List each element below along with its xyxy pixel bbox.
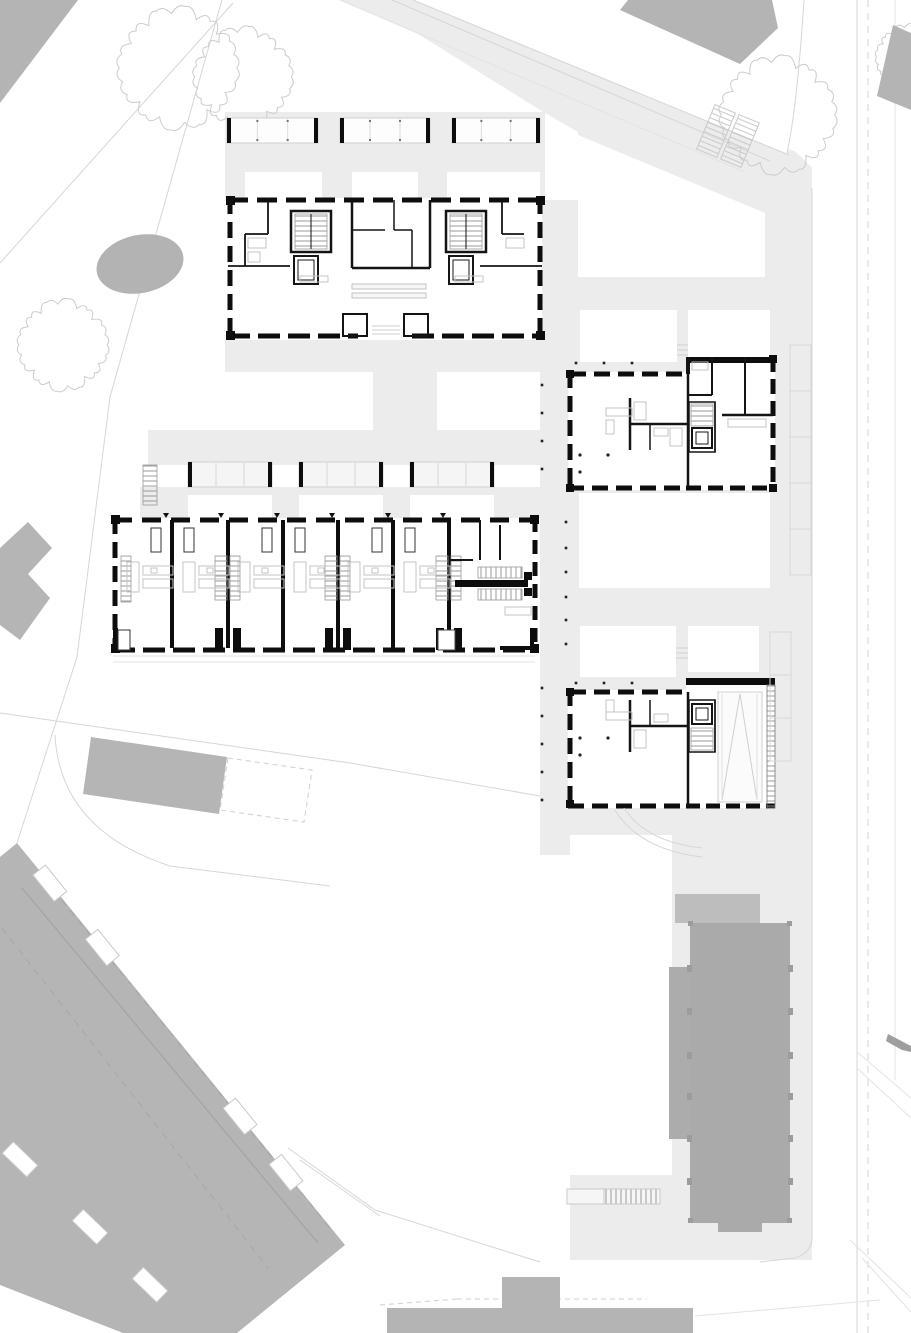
- garden-se-2: [688, 626, 759, 672]
- column-dot: [603, 682, 606, 685]
- stair-lift-core: [689, 402, 715, 452]
- porch-west: [113, 628, 118, 652]
- unit-stair-1: [215, 556, 227, 600]
- column-dot: [541, 384, 544, 387]
- pergola-3: [410, 462, 494, 487]
- column-dot: [565, 521, 568, 524]
- tower-pilaster: [788, 1052, 793, 1059]
- hall-north-wall: [686, 678, 775, 685]
- pergola-2: [299, 462, 383, 487]
- wardrobe-3b: [405, 528, 415, 552]
- mailbox-counter-2: [352, 293, 426, 298]
- tower-pilaster: [687, 1052, 692, 1059]
- porch-2b: [343, 628, 351, 650]
- west-exterior-stair: [143, 465, 157, 505]
- patio-north-2: [352, 172, 418, 200]
- tower-pilaster: [687, 965, 692, 972]
- tower-west-lawn: [570, 835, 672, 1175]
- patio-north-1: [245, 172, 322, 200]
- garden-ne-1: [580, 310, 677, 362]
- tower-pilaster: [687, 1135, 692, 1142]
- tower-pilaster: [687, 1008, 692, 1015]
- corridor-stair-lower: [478, 589, 522, 600]
- wardrobe-1b: [184, 528, 194, 552]
- tower-west-annex: [669, 967, 690, 1139]
- tower-south-tab: [718, 1223, 762, 1232]
- plaza-west-notch: [540, 855, 570, 1260]
- column-dot: [631, 362, 634, 365]
- wardrobe-3a: [372, 528, 382, 552]
- central-path: [373, 372, 437, 432]
- unit-stair-west: [121, 556, 131, 602]
- balcony-strip-1: [227, 118, 318, 143]
- street-junction-lines: [857, 1052, 911, 1118]
- rowhouse-patio-1: [188, 495, 272, 518]
- tower-pilaster: [788, 1093, 793, 1100]
- south-kerb-line: [695, 1300, 880, 1316]
- tower-pilaster: [687, 1093, 692, 1100]
- tree-canopy-3: [17, 298, 109, 392]
- plan-east-house-north: [566, 355, 777, 492]
- north-building-balconies: [227, 118, 540, 143]
- column-dot: [541, 715, 544, 718]
- southwest-mass: [0, 843, 345, 1333]
- unit-stair-2: [325, 556, 337, 600]
- column-dot: [541, 687, 544, 690]
- site-plan-page: [0, 0, 911, 1333]
- southwest-mass-body: [0, 843, 345, 1333]
- porch-1a: [215, 628, 223, 650]
- column-dot: [541, 468, 544, 471]
- unit-stair-3: [436, 556, 448, 600]
- column-dot: [565, 571, 568, 574]
- central-lawn: [579, 493, 770, 588]
- column-dot: [631, 682, 634, 685]
- corridor-stair-upper: [478, 567, 522, 578]
- ramp-hall: [718, 692, 762, 802]
- rowhouse-patio-3: [410, 495, 494, 518]
- context-building-chevron: [0, 522, 52, 640]
- pergolas: [188, 462, 494, 487]
- porch-2a: [325, 628, 333, 650]
- column-dot: [541, 743, 544, 746]
- column-dot: [565, 547, 568, 550]
- porch-1b: [233, 628, 241, 650]
- column-dot: [541, 440, 544, 443]
- site-plan-canvas: [0, 0, 911, 1333]
- porch-room: [438, 630, 455, 650]
- south-of-north-building-band: [225, 340, 545, 372]
- rowhouse-north-band: [148, 430, 545, 465]
- column-dot: [575, 682, 578, 685]
- column-dot: [541, 412, 544, 415]
- column-dot: [565, 643, 568, 646]
- context-building-south: [387, 1277, 693, 1333]
- tower-pilaster: [687, 1178, 692, 1185]
- pond: [91, 226, 189, 301]
- tower-west-stair: [567, 1189, 660, 1204]
- stair-treads: [604, 1189, 660, 1204]
- garden-se-1: [580, 626, 676, 677]
- context-building-west: [83, 737, 227, 814]
- column-dot: [541, 771, 544, 774]
- wardrobe-2a: [262, 528, 272, 552]
- corridor-wall: [455, 580, 528, 587]
- hall-east-wall-hatched: [767, 685, 775, 808]
- context-wall-east: [886, 1034, 911, 1052]
- column-dot: [541, 799, 544, 802]
- column-dot: [565, 596, 568, 599]
- tower-pilaster: [788, 1008, 793, 1015]
- tower-north-annex: [675, 894, 760, 923]
- balcony-strip-3: [452, 118, 540, 143]
- planned-extension-dashed: [220, 758, 312, 822]
- rowhouse-patio-2: [299, 495, 383, 518]
- mailbox-counter-1: [352, 284, 426, 289]
- tower-pilaster: [788, 1178, 793, 1185]
- corner-road-lines: [850, 1240, 911, 1312]
- plinth-lines: [113, 656, 535, 662]
- column-dot: [565, 619, 568, 622]
- south-west-boundary: [0, 713, 540, 796]
- tower-pilaster: [788, 965, 793, 972]
- garden-ne-2: [688, 310, 770, 360]
- tower-pilaster: [788, 1135, 793, 1142]
- patio-north-3: [447, 172, 540, 200]
- wardrobe-2b: [295, 528, 305, 552]
- column-dot: [575, 362, 578, 365]
- balcony-strip-2: [340, 118, 430, 143]
- context-building-northwest: [0, 0, 78, 103]
- tower-main-body: [690, 923, 790, 1223]
- column-dot: [603, 362, 606, 365]
- wardrobe-1a: [151, 528, 161, 552]
- pergola-1: [188, 462, 272, 487]
